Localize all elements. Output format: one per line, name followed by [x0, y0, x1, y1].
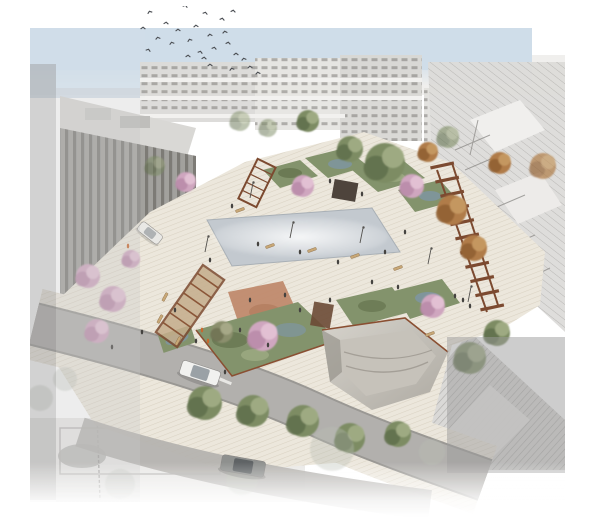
person-figure — [231, 204, 233, 209]
bird — [231, 10, 236, 12]
architectural-rendering — [0, 0, 600, 517]
person-figure — [299, 308, 301, 313]
right-margin — [565, 0, 600, 517]
person-figure — [224, 370, 226, 375]
person-figure — [329, 179, 331, 184]
person-figure — [404, 230, 406, 235]
person-figure — [361, 192, 363, 197]
overlay-left-strip-light — [56, 88, 140, 502]
person-figure — [201, 328, 203, 333]
tree-ghost — [419, 439, 445, 465]
garden-shed — [310, 301, 334, 328]
bird — [193, 25, 198, 27]
bird — [147, 10, 152, 13]
person-figure — [454, 294, 456, 299]
tree-autumn — [417, 142, 438, 162]
person-figure — [267, 343, 269, 348]
person-figure — [397, 285, 399, 290]
bird — [164, 22, 169, 24]
person-figure — [469, 304, 471, 309]
person-figure — [249, 298, 251, 303]
left-margin — [0, 0, 30, 517]
person-figure — [384, 250, 386, 255]
bottom-white-fade — [0, 462, 600, 517]
person-figure — [329, 298, 331, 303]
person-figure — [141, 330, 143, 335]
person-figure — [462, 298, 464, 303]
person-figure — [207, 339, 209, 344]
person-figure — [195, 339, 197, 344]
overlay-left-strip-dark — [30, 64, 56, 500]
bird — [203, 12, 208, 15]
render-canvas — [0, 0, 600, 517]
person-figure — [337, 260, 339, 265]
top-margin — [0, 0, 600, 6]
person-figure — [284, 293, 286, 298]
bird — [220, 18, 225, 21]
person-figure — [239, 328, 241, 333]
person-figure — [209, 258, 211, 263]
balcony-strip-2 — [140, 96, 422, 100]
person-figure — [299, 250, 301, 255]
overlay-bottomright — [447, 337, 565, 473]
balcony-strip-1 — [140, 78, 422, 82]
person-figure — [371, 280, 373, 285]
person-figure — [174, 308, 176, 313]
person-figure — [257, 242, 259, 247]
